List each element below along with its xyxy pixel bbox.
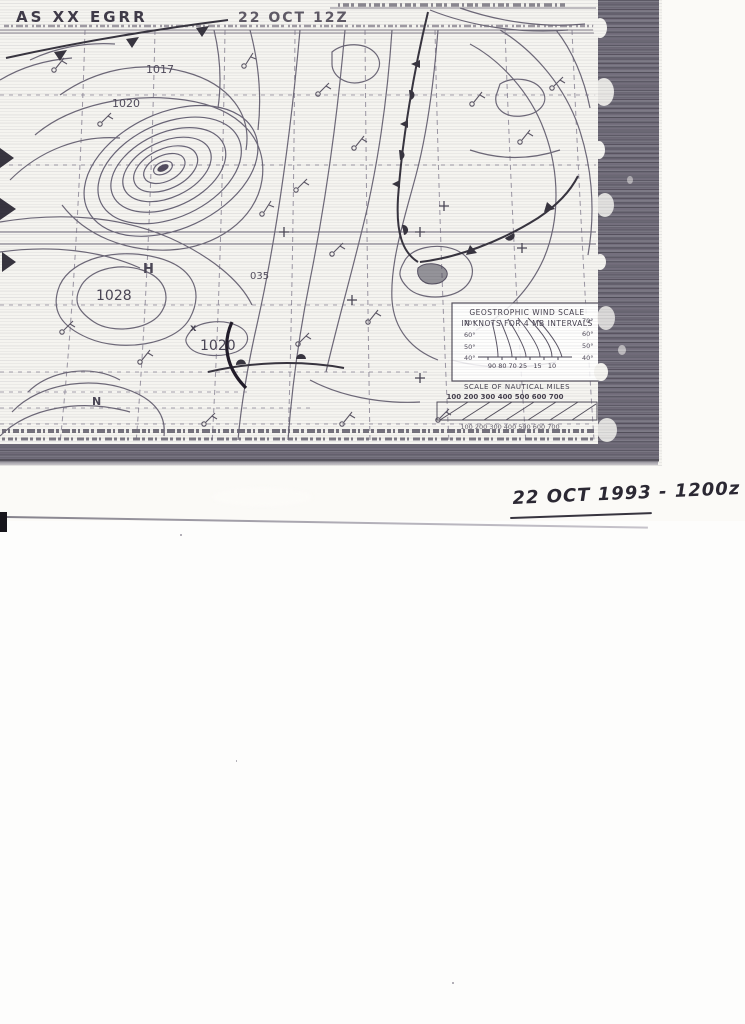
edge-blob [594, 254, 606, 270]
edge-blob [593, 141, 605, 159]
paper-speck [180, 534, 182, 536]
photocopy-sheet: AS XX EGRR 22 OCT 12Z 1017 1020 H 1028 x… [0, 0, 745, 521]
wind-scale-speeds: 90 80 70 25 15 10 [488, 362, 556, 370]
wind-scale-lat-right-3: 40° [582, 354, 594, 362]
isobar-ring [113, 124, 222, 214]
x-mark: x [190, 323, 197, 334]
fax-header-center: 22 OCT 12Z [238, 10, 349, 26]
wind-scale-title: GEOSTROPHIC WIND SCALE [469, 308, 584, 317]
synoptic-chart-svg: AS XX EGRR 22 OCT 12Z 1017 1020 H 1028 x… [0, 0, 662, 466]
bottom-band-streaks [0, 444, 659, 461]
pressure-label-1017: 1017 [146, 63, 174, 76]
distance-scale-ticks-bottom: 100 200 300 400 500 600 700 [460, 423, 559, 431]
station-label-035: 035 [250, 271, 269, 282]
wind-scale-lat-right-0: 70° [582, 317, 594, 325]
low-east-scribble [418, 264, 448, 284]
paper-speck [452, 982, 454, 984]
right-band-streaks [598, 0, 659, 461]
wind-scale-lat-left-2: 50° [464, 343, 476, 351]
sheet-edge-line [7, 516, 648, 529]
front-south-mid [208, 363, 344, 372]
wind-scale-lat-right-1: 60° [582, 330, 594, 338]
low-symbol-sw: N [92, 395, 101, 408]
distance-scale-title: SCALE OF NAUTICAL MILES [464, 383, 570, 391]
wind-scale-lat-left-3: 40° [464, 354, 476, 362]
scan-band-right [593, 0, 659, 461]
edge-blob [597, 418, 617, 442]
edge-blob [618, 345, 626, 355]
distance-scale-ticks: 100 200 300 400 500 600 700 [447, 393, 564, 401]
fax-header-left: AS XX EGRR [16, 8, 148, 26]
wind-scale-lat-left-1: 60° [464, 331, 476, 339]
isobar-ring [97, 111, 239, 230]
low-center-spiral [63, 79, 279, 262]
weather-chart-scan: AS XX EGRR 22 OCT 12Z 1017 1020 H 1028 x… [0, 0, 662, 466]
paper-speck [236, 760, 237, 762]
scan-bottom-shadow [0, 461, 658, 465]
distance-scale-diagonals [440, 402, 596, 420]
handwritten-date: 22 OCT 1993 - 1200z [512, 481, 663, 509]
edge-blob [596, 193, 614, 217]
edge-blob [627, 176, 633, 184]
high-symbol: H [143, 262, 154, 277]
edge-blob [593, 18, 607, 38]
isobar-ring [63, 79, 279, 262]
wind-scale-subtitle: IN KNOTS FOR 4 MB INTERVALS [461, 319, 593, 328]
pressure-label-1020-nw: 1020 [112, 97, 140, 110]
geostrophic-wind-scale: GEOSTROPHIC WIND SCALE IN KNOTS FOR 4 MB… [452, 303, 602, 381]
nautical-miles-scale: SCALE OF NAUTICAL MILES 100 200 300 400 … [437, 383, 597, 431]
scan-band-bottom [0, 444, 659, 462]
pressure-label-1020-se: 1020 [200, 338, 236, 354]
edge-blob [594, 363, 608, 381]
front-heavy-arc [227, 322, 246, 388]
handwritten-underline [510, 512, 652, 519]
paper-fold-highlight [212, 488, 312, 506]
edge-blob [597, 306, 615, 330]
edge-blob [594, 78, 614, 106]
pressure-label-1028: 1028 [96, 288, 132, 304]
wind-scale-lat-left-0: 70° [464, 319, 476, 327]
corner-shadow-wedge [0, 512, 7, 532]
wind-scale-lat-right-2: 50° [582, 342, 594, 350]
